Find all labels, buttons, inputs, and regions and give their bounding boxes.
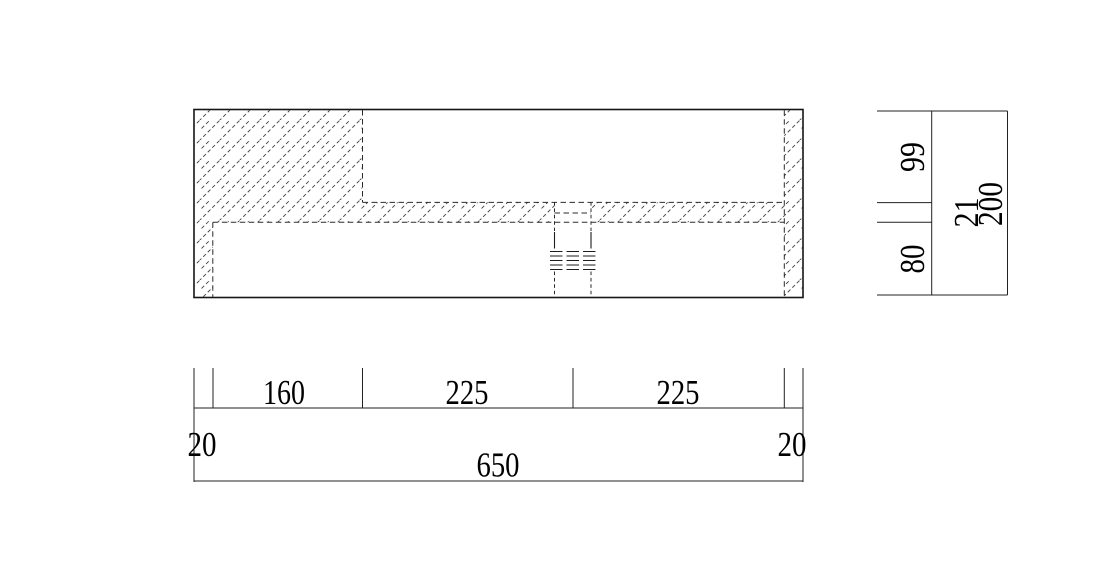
dim-label-160: 160 — [263, 373, 305, 412]
dim-label-99: 99 — [893, 142, 932, 172]
technical-drawing-canvas: 20 160 225 225 20 650 99 21 80 200 — [0, 0, 1112, 568]
drain-hole-cutout — [555, 202, 592, 224]
dim-label-200-total: 200 — [971, 182, 1010, 226]
dim-label-20-left: 20 — [188, 425, 217, 464]
hatch-left-wall — [195, 222, 213, 297]
dim-label-20-right: 20 — [778, 425, 807, 464]
dim-label-225-b: 225 — [657, 373, 700, 412]
drain-pipe-walls — [555, 232, 592, 249]
dim-label-225-a: 225 — [446, 373, 489, 412]
drain-thread-lines — [550, 252, 596, 270]
bottom-dimension-chain: 20 160 225 225 20 650 — [188, 368, 807, 485]
hatch-right-wall — [784, 110, 802, 296]
hatch-left-block — [195, 110, 362, 222]
side-dimension-chain: 99 21 80 200 — [877, 111, 1010, 295]
drain-pipe-hidden-lower — [555, 272, 592, 297]
front-section-view — [194, 110, 803, 298]
drawing-sheet: 20 160 225 225 20 650 99 21 80 200 — [0, 0, 1112, 568]
dim-label-80: 80 — [893, 245, 932, 274]
dim-label-650-total: 650 — [477, 446, 520, 485]
